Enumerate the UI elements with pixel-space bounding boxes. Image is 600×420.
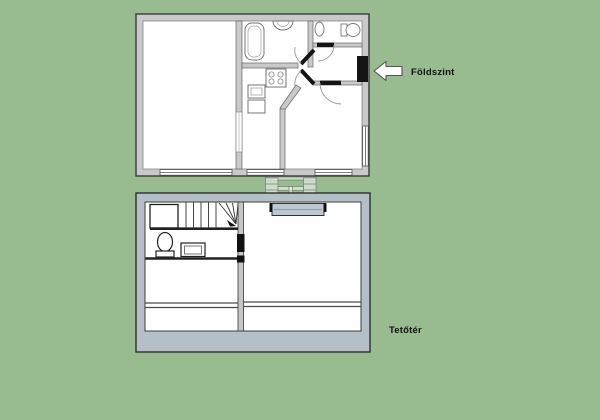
floorplan-drawing: [0, 0, 600, 420]
ground-floor-plan: [136, 14, 369, 176]
ground-floor-label: Földszint: [411, 67, 455, 78]
wc-sink-icon: [315, 22, 324, 36]
bathtub-icon: [245, 23, 264, 60]
entrance-arrow-icon: [374, 62, 402, 81]
floorplan-canvas: Földszint Tetőtér: [0, 0, 600, 420]
interior-opening: [236, 112, 242, 152]
attic-divider-wall: [237, 202, 245, 331]
attic-sink-icon: [181, 243, 205, 257]
entrance-door: [357, 56, 368, 82]
stove-icon: [266, 69, 286, 87]
skylight-icon: [270, 203, 327, 216]
attic-floor-label: Tetőtér: [389, 325, 422, 336]
attic-toilet-icon: [156, 233, 174, 258]
closet-room: [150, 205, 178, 229]
attic-floor-plan: [136, 193, 370, 352]
toilet-icon: [341, 24, 360, 37]
